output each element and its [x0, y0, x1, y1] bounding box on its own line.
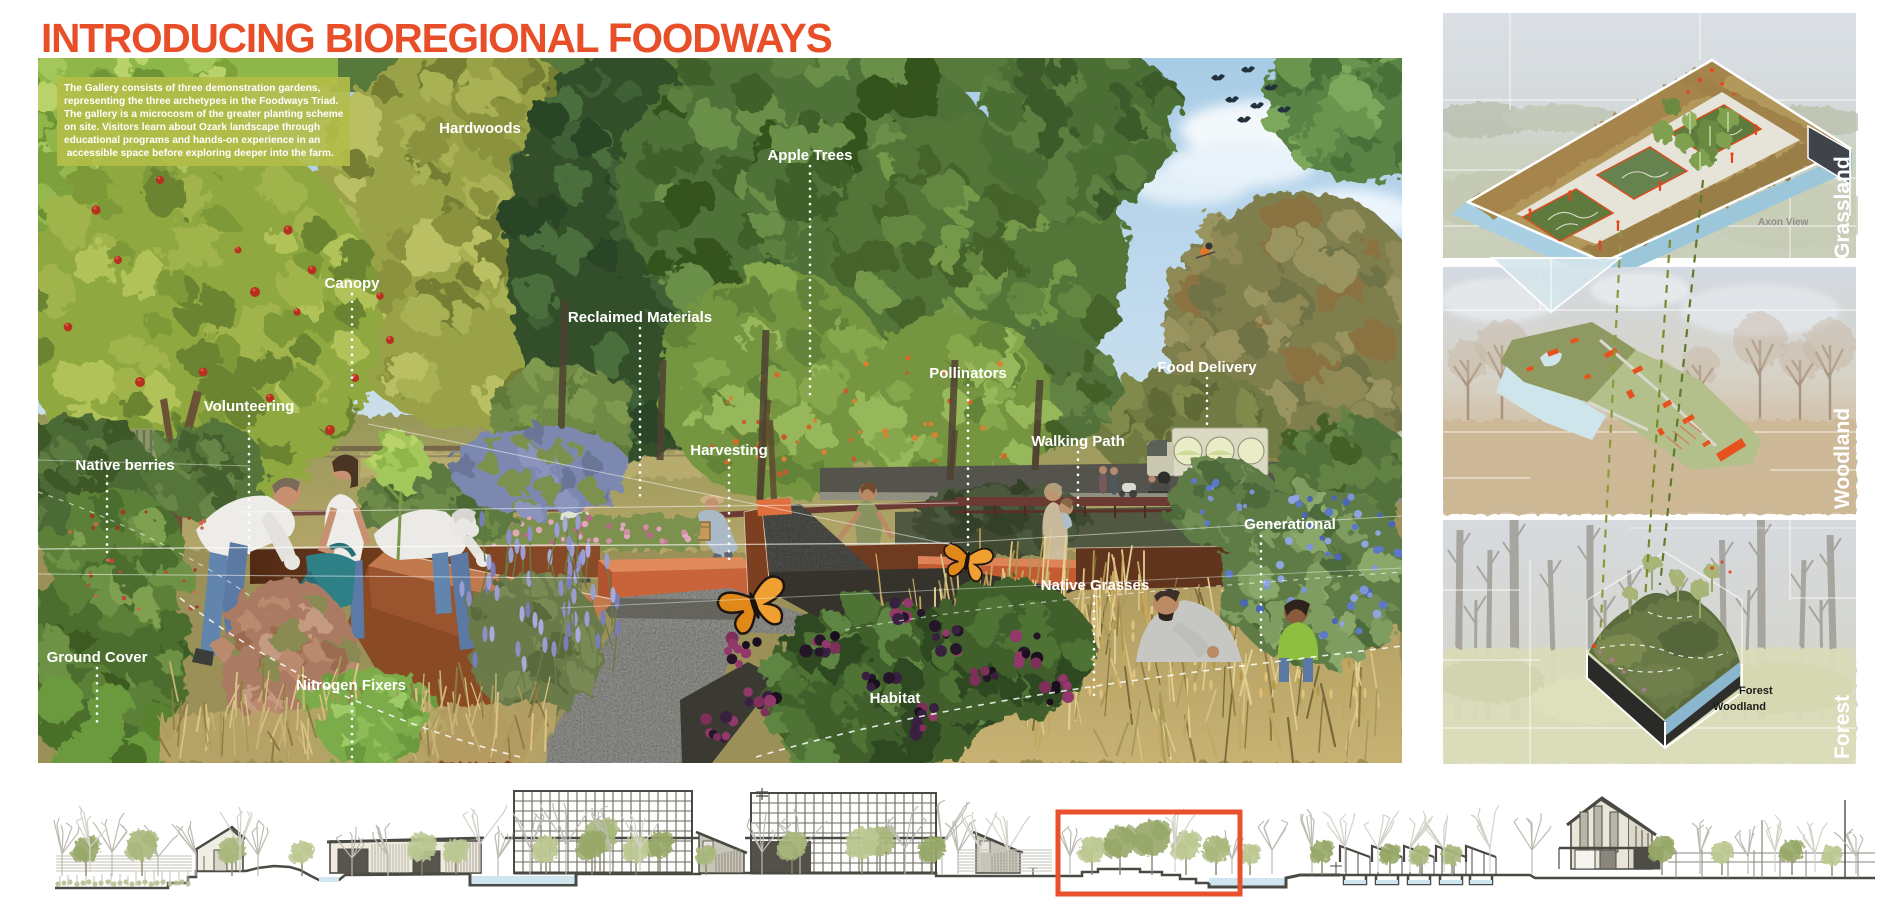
- svg-text:Canopy: Canopy: [324, 275, 380, 292]
- svg-text:Volunteering: Volunteering: [204, 398, 295, 415]
- svg-text:Nitrogen Fixers: Nitrogen Fixers: [296, 677, 406, 694]
- svg-text:Pollinators: Pollinators: [929, 365, 1007, 382]
- svg-text:Reclaimed Materials: Reclaimed Materials: [568, 309, 712, 326]
- svg-text:Ground Cover: Ground Cover: [47, 649, 148, 666]
- svg-text:Native berries: Native berries: [75, 457, 174, 474]
- svg-text:Food Delivery: Food Delivery: [1157, 359, 1257, 376]
- svg-text:Harvesting: Harvesting: [690, 442, 768, 459]
- svg-text:Walking Path: Walking Path: [1031, 433, 1125, 450]
- svg-text:Generational: Generational: [1244, 516, 1336, 533]
- svg-text:Forest: Forest: [1831, 695, 1854, 759]
- svg-text:Grassland: Grassland: [1831, 156, 1854, 259]
- svg-text:Forest: Forest: [1739, 685, 1773, 697]
- svg-text:Woodland: Woodland: [1831, 408, 1854, 509]
- svg-text:Apple Trees: Apple Trees: [767, 147, 852, 164]
- svg-text:Native Grasses: Native Grasses: [1041, 577, 1149, 594]
- svg-text:Axon View: Axon View: [1758, 217, 1809, 228]
- svg-text:Woodland: Woodland: [1713, 701, 1766, 713]
- svg-text:Hardwoods: Hardwoods: [439, 120, 521, 137]
- svg-text:Habitat: Habitat: [870, 690, 921, 707]
